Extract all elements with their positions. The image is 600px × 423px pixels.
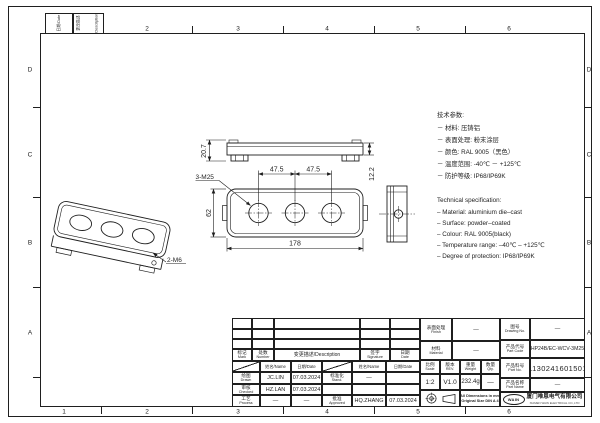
finish-label-cell: 表面处理 Finish — [420, 318, 452, 341]
description-label: 变更描述/Description — [294, 353, 340, 358]
qty-label-cell: 数量 Qty. — [481, 360, 500, 374]
date-header-label: 日期/Date — [297, 364, 315, 369]
projection-cone-icon — [442, 394, 456, 404]
stand-role-cell: 标准化 Stand. — [322, 372, 352, 384]
process-date-cell: — — [291, 395, 322, 407]
revision-empty-cell — [360, 339, 390, 349]
company-name-en: XIAMEN WAIN ELECTRICAL CO.,LTD — [530, 401, 580, 405]
part-no-value: 1130241601501 — [530, 364, 585, 373]
revision-header-number: 处数 Number — [252, 349, 274, 361]
checked-date: 07.03.2024 — [293, 387, 321, 393]
revision-header-date: 日期 Date — [390, 349, 420, 361]
scale-label-cell: 比例 Scale — [420, 360, 440, 374]
signature-label-en: Signature — [367, 355, 383, 360]
part-code-label-cell: 产品代号 Part Code — [500, 340, 530, 358]
qty-value: — — [487, 379, 494, 386]
revision-empty-cell — [360, 318, 390, 329]
scale-label-en: Scale — [425, 367, 434, 372]
revision-empty-cell — [274, 318, 360, 329]
empty-cell — [352, 384, 386, 395]
sign-name-header: 姓名/Name — [260, 361, 291, 372]
company-cell: WAIN 厦门唯恩电气有限公司 XIAMEN WAIN ELECTRICAL C… — [500, 392, 585, 407]
mark-label-en: Mark — [238, 355, 246, 360]
drawn-date: 07.03.2024 — [293, 375, 321, 381]
revision-empty-cell — [390, 318, 420, 329]
stand-value-cell: — — [352, 372, 386, 384]
process-name: — — [273, 398, 279, 404]
finish-label-en: Finish — [431, 330, 441, 335]
weight-label-en: Weight — [465, 367, 476, 372]
projection-symbols-cell — [420, 390, 460, 407]
wain-oval-logo: WAIN — [503, 394, 525, 405]
revision-header-description: 变更描述/Description — [274, 349, 360, 361]
process-date: — — [304, 398, 310, 404]
approved-date-cell: 07.03.2024 — [386, 395, 420, 407]
rev-value-cell: V1.0 — [440, 374, 460, 390]
dim-side-total-height: 20.7 — [201, 144, 208, 158]
revision-empty-cell — [274, 329, 360, 339]
projection-circles-icon — [425, 392, 438, 405]
finish-value: — — [473, 327, 479, 333]
part-code-label-en: Part Code — [507, 349, 524, 354]
revision-empty-cell — [360, 329, 390, 339]
dimension-note-cell: All Dimensions in mm Original Size DIN A… — [460, 390, 500, 407]
revision-empty-cell — [390, 339, 420, 349]
dim-plate-width: 178 — [289, 241, 301, 248]
process-label-en: Process — [239, 401, 252, 406]
scale-value: 1:2 — [425, 379, 434, 386]
sign-diagonal-cell — [232, 361, 260, 372]
front-view-dims — [196, 171, 364, 252]
name-header-label: 姓名/Name — [359, 364, 380, 369]
part-no-label-en: Part No. — [508, 368, 522, 373]
drawn-role-cell: 绘图 Drawn — [232, 372, 260, 384]
isometric-view — [49, 200, 171, 275]
qty-label-en: Qty. — [487, 367, 494, 372]
part-code-value-cell: HP24B/EC-WCV-3M25 — [530, 340, 585, 358]
sign-diagonal-cell — [322, 361, 352, 372]
drawing-no-label-en: Drawing No. — [505, 329, 525, 334]
revision-empty-cell — [232, 318, 252, 329]
drawing-no-value: — — [555, 326, 561, 332]
drawn-name-cell: JC.LIN — [260, 372, 291, 384]
revision-empty-cell — [252, 318, 274, 329]
number-label-en: Number — [256, 355, 269, 360]
scale-value-cell: 1:2 — [420, 374, 440, 390]
qty-value-cell: — — [481, 374, 500, 390]
date-header-label: 日期/Date — [394, 364, 412, 369]
revision-header-signature: 签字 Signature — [360, 349, 390, 361]
approved-label-en: Approved — [329, 401, 345, 406]
sign-date-header: 日期/Date — [291, 361, 322, 372]
dim-pitch-right: 47.5 — [306, 167, 320, 174]
sign-name-header-right: 姓名/Name — [352, 361, 386, 372]
part-no-value-cell: 1130241601501 — [530, 358, 585, 378]
stand-value: — — [366, 375, 372, 381]
dim-iso-thread-label: 2-M6 — [167, 257, 182, 264]
name-header-label: 姓名/Name — [265, 364, 286, 369]
sign-date-header-right: 日期/Date — [386, 361, 420, 372]
part-no-label-cell: 产品料号 Part No. — [500, 358, 530, 378]
checked-name: HZ.LAN — [266, 387, 286, 393]
date-label-en: Date — [401, 355, 409, 360]
process-role-cell: 工艺 Process — [232, 395, 260, 407]
weight-value-cell: 232.4g — [460, 374, 481, 390]
approved-name: HQ.ZHANG — [354, 398, 383, 404]
revision-empty-cell — [252, 329, 274, 339]
dim-plate-height: 62 — [206, 209, 213, 217]
revision-empty-cell — [252, 339, 274, 349]
revision-empty-cell — [274, 339, 360, 349]
part-name-value-cell: — — [530, 378, 585, 392]
rev-label-cell: 版本 REV. — [440, 360, 460, 374]
material-value: — — [473, 348, 479, 354]
checked-date-cell: 07.03.2024 — [291, 384, 322, 395]
empty-cell — [322, 384, 352, 395]
finish-value-cell: — — [452, 318, 500, 341]
part-name-value: — — [555, 382, 561, 388]
approved-date: 07.03.2024 — [389, 398, 417, 404]
empty-cell — [386, 384, 420, 395]
rev-label-en: REV. — [446, 367, 454, 372]
side-elevation-view — [227, 140, 363, 161]
revision-empty-cell — [390, 329, 420, 339]
weight-value: 232.4g — [461, 379, 479, 385]
stand-label-en: Stand. — [332, 378, 343, 383]
stand-date-cell — [386, 372, 420, 384]
engineering-drawing-sheet: 1 2 3 4 5 6 1 2 3 4 5 6 D C B A D C B A … — [0, 0, 600, 423]
drawn-label-en: Drawn — [241, 378, 252, 383]
revision-empty-cell — [232, 339, 252, 349]
part-name-label-en: Part Name — [506, 385, 524, 390]
dim-side-body-height: 12.2 — [369, 167, 376, 181]
material-label-cell: 材料 Material — [420, 341, 452, 360]
checked-role-cell: 审核 Checked — [232, 384, 260, 395]
material-value-cell: — — [452, 341, 500, 360]
dim-hole-thread-label: 3-M25 — [196, 174, 215, 181]
rev-value: V1.0 — [443, 379, 456, 386]
checked-label-en: Checked — [239, 390, 254, 395]
note-line2: Original Size DIN A 4 — [461, 399, 498, 404]
right-side-view — [379, 186, 415, 242]
weight-label-cell: 重量 Weight — [460, 360, 481, 374]
part-code-value: HP24B/EC-WCV-3M25 — [531, 346, 584, 352]
checked-name-cell: HZ.LAN — [260, 384, 291, 395]
drawing-no-label-cell: 图号 Drawing No. — [500, 318, 530, 340]
drawing-no-value-cell: — — [530, 318, 585, 340]
part-name-label-cell: 产品名称 Part Name — [500, 378, 530, 392]
drawn-date-cell: 07.03.2024 — [291, 372, 322, 384]
dim-pitch-left: 47.5 — [270, 167, 284, 174]
material-label-en: Material — [429, 351, 442, 356]
process-name-cell: — — [260, 395, 291, 407]
drawn-name: JC.LIN — [267, 375, 284, 381]
revision-empty-cell — [232, 329, 252, 339]
revision-header-mark: 标记 Mark — [232, 349, 252, 361]
approved-role-cell: 批准 Approved — [322, 395, 352, 407]
approved-name-cell: HQ.ZHANG — [352, 395, 386, 407]
